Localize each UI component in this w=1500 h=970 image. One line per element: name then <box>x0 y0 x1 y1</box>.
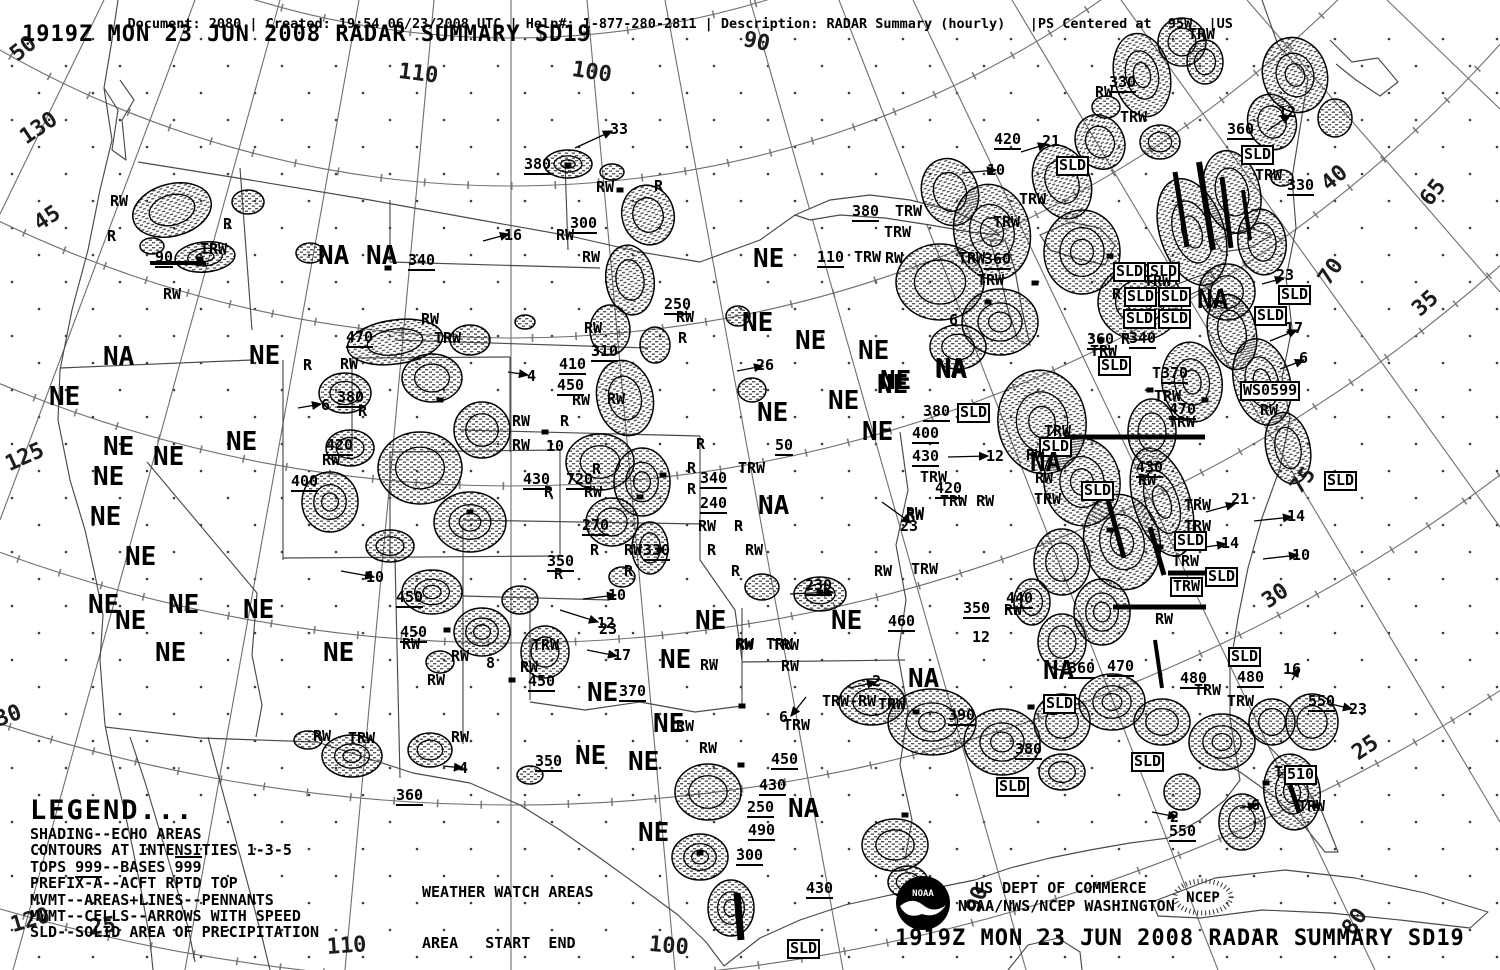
map-label: 450 <box>771 752 798 770</box>
map-label: R <box>678 331 687 347</box>
map-label: 10 <box>1292 548 1310 564</box>
map-label: SLD <box>1043 694 1076 714</box>
map-label: 360 <box>1068 661 1095 679</box>
map-label: SLD <box>1254 306 1287 326</box>
map-label: TRW <box>1194 683 1221 699</box>
map-label: 480 <box>1237 670 1264 688</box>
map-label: 10 <box>608 588 626 604</box>
map-label: TRW <box>958 251 985 267</box>
map-label: SLD <box>1158 309 1191 329</box>
map-label: NE <box>226 429 257 456</box>
grid-label: 130 <box>16 108 62 149</box>
map-label: SLD <box>1124 287 1157 307</box>
map-label: SLD <box>1174 531 1207 551</box>
map-label: 330 <box>1287 178 1314 196</box>
map-label: 340 <box>1129 331 1156 349</box>
map-label: 310 <box>591 344 618 362</box>
map-label: NE <box>858 338 889 365</box>
map-label: 10 <box>987 163 1005 179</box>
legend-line: MVMT--AREAS+LINES--PENNANTS <box>30 892 319 908</box>
grid-label: 25 <box>1348 731 1383 765</box>
radar-title-top: 1919Z MON 23 JUN 2008 RADAR SUMMARY SD19 <box>22 22 592 47</box>
map-label: NE <box>660 647 691 674</box>
map-label: TRW <box>895 204 922 220</box>
map-label: TRW <box>772 638 799 654</box>
map-label: RW <box>313 729 331 745</box>
map-label: 33 <box>610 122 628 138</box>
legend-line: PREFIX-A--ACFT RPTD TOP <box>30 875 319 891</box>
map-label: RW <box>781 659 799 675</box>
map-label: RW <box>607 392 625 408</box>
map-label: 12 <box>1278 105 1296 121</box>
map-label: 380 <box>852 204 879 222</box>
map-label: R <box>696 437 705 453</box>
map-label: 270 <box>582 518 609 536</box>
map-label: RW <box>572 393 590 409</box>
map-label: 50 <box>775 438 793 456</box>
map-label: NE <box>880 368 911 395</box>
map-label: SLD <box>1228 647 1261 667</box>
map-label: 17 <box>613 648 631 664</box>
map-label: 460 <box>888 614 915 632</box>
map-label: NE <box>153 444 184 471</box>
map-label: RW <box>1155 612 1173 628</box>
map-label: SLD <box>996 777 1029 797</box>
map-label: SLD <box>1205 567 1238 587</box>
map-label: NE <box>155 640 186 667</box>
legend-block: LEGEND... SHADING--ECHO AREASCONTOURS AT… <box>30 795 319 941</box>
map-label: 250 <box>747 800 774 818</box>
grid-label: 110 <box>397 60 439 88</box>
map-label: NE <box>115 608 146 635</box>
map-label: NA <box>366 243 397 270</box>
map-label: 300 <box>570 216 597 234</box>
map-label: NE <box>90 504 121 531</box>
map-label: SLD <box>957 403 990 423</box>
map-label: 23 <box>1276 268 1294 284</box>
grid-label: 40 <box>1317 161 1352 196</box>
map-label: SLD <box>1131 752 1164 772</box>
map-label: TRW <box>348 731 375 747</box>
map-label: SLD <box>1123 309 1156 329</box>
map-label: NE <box>742 310 773 337</box>
map-label: NE <box>862 419 893 446</box>
map-label: NE <box>695 608 726 635</box>
map-label: 550 <box>1169 824 1196 842</box>
map-label: TRW <box>1034 492 1061 508</box>
map-label: R <box>687 482 696 498</box>
map-label: 8 <box>486 656 495 672</box>
map-label: NE <box>243 597 274 624</box>
map-label: 4 <box>527 369 536 385</box>
map-label: TRW <box>1168 415 1195 431</box>
legend-line: SHADING--ECHO AREAS <box>30 826 319 842</box>
grid-label: 65 <box>1416 175 1451 210</box>
map-label: RW <box>676 719 694 735</box>
map-label: 350 <box>535 754 562 772</box>
map-label: TRW <box>1184 498 1211 514</box>
map-label: TRW <box>738 461 765 477</box>
map-label: TRW <box>993 215 1020 231</box>
map-label: RW <box>596 180 614 196</box>
map-label: R <box>560 414 569 430</box>
map-label: RW <box>402 637 420 653</box>
map-label: R <box>592 462 601 478</box>
map-label: SLD <box>787 939 820 959</box>
map-label: RW <box>874 564 892 580</box>
map-label: NE <box>323 640 354 667</box>
map-label: 4 <box>459 761 468 777</box>
map-label: NE <box>757 400 788 427</box>
map-label: 12 <box>972 630 990 646</box>
map-label: RW <box>584 485 602 501</box>
map-label: R <box>731 564 740 580</box>
map-label: RW <box>584 321 602 337</box>
map-label: RW <box>512 414 530 430</box>
map-label: 10 <box>546 439 564 455</box>
map-label: 330 <box>643 543 670 561</box>
map-label: 230 <box>805 578 832 596</box>
map-label: R <box>554 567 563 583</box>
map-label: 370 <box>619 684 646 702</box>
map-label: RW <box>451 730 469 746</box>
map-label: R <box>544 485 553 501</box>
map-label: 350 <box>963 601 990 619</box>
map-label: 380 <box>524 157 551 175</box>
map-label: TRW <box>1170 577 1203 597</box>
map-label: RW <box>322 453 340 469</box>
map-label: TRW <box>1255 168 1282 184</box>
map-label: NE <box>587 680 618 707</box>
map-label: 380 <box>923 404 950 422</box>
map-label: TRW <box>783 718 810 734</box>
agency-block: US DEPT OF COMMERCE NOAA/NWS/NCEP WASHIN… <box>880 865 1300 945</box>
map-label: TRW <box>911 562 938 578</box>
map-label: 12 <box>986 449 1004 465</box>
map-label: RW <box>1095 85 1113 101</box>
map-label: T <box>1152 366 1161 382</box>
map-label: 430 <box>912 449 939 467</box>
map-label: 400 <box>912 426 939 444</box>
map-label: RW <box>1260 403 1278 419</box>
map-label: 10 <box>366 570 384 586</box>
map-label: TRW <box>434 331 461 347</box>
map-label: R <box>107 229 116 245</box>
map-label: R <box>707 543 716 559</box>
map-label: RW <box>624 543 642 559</box>
map-label: NE <box>628 749 659 776</box>
map-label: 240 <box>700 496 727 514</box>
legend-line: SLD--SOLID AREA OF PRECIPITATION <box>30 924 319 940</box>
map-label: 26 <box>756 358 774 374</box>
grid-label: 125 <box>2 439 48 476</box>
map-label: NE <box>828 388 859 415</box>
map-label: R <box>358 404 367 420</box>
legend-title: LEGEND... <box>30 795 319 826</box>
map-label: 340 <box>408 253 435 271</box>
map-label: NE <box>795 328 826 355</box>
map-label: 450 <box>396 590 423 608</box>
map-label: R <box>734 519 743 535</box>
map-label: RW <box>582 250 600 266</box>
map-label: TRW <box>1120 110 1147 126</box>
map-label: T <box>1274 765 1283 781</box>
grid-label: 70 <box>1314 254 1348 289</box>
map-label: 380 <box>1015 742 1042 760</box>
map-label: TRW <box>977 273 1004 289</box>
map-label: TRW <box>884 225 911 241</box>
map-label: RW <box>421 312 439 328</box>
map-label: RW <box>451 649 469 665</box>
weather-watch-box: WEATHER WATCH AREAS AREA START END WS059… <box>422 850 594 970</box>
map-label: 360 <box>1227 122 1254 140</box>
map-label: 330 <box>1109 75 1136 93</box>
map-label: NE <box>125 544 156 571</box>
map-label: 400 <box>291 474 318 492</box>
map-label: SLD <box>1056 156 1089 176</box>
map-label: RW <box>512 438 530 454</box>
map-label: RW <box>163 287 181 303</box>
map-label: 6 <box>949 313 958 329</box>
map-label: SLD <box>1278 285 1311 305</box>
legend-line: TOPS 999--BASES 999 <box>30 859 319 875</box>
map-label: 110 <box>817 250 844 268</box>
watch-columns: AREA START END <box>422 935 594 952</box>
map-label: 470 <box>346 330 373 348</box>
map-label: 6 <box>321 398 330 414</box>
agency-org: NOAA/NWS/NCEP WASHINGTON <box>958 897 1175 915</box>
grid-label: 30 <box>1258 579 1293 613</box>
map-label: R <box>687 461 696 477</box>
map-label: 16 <box>504 228 522 244</box>
map-label: RW <box>698 519 716 535</box>
map-label: TRW <box>200 242 227 258</box>
map-label: 490 <box>748 823 775 841</box>
map-label: 470 <box>1107 659 1134 677</box>
map-label: RW <box>676 310 694 326</box>
map-label: SLD <box>1158 287 1191 307</box>
map-label: 360 <box>984 252 1011 270</box>
map-label: RW <box>427 673 445 689</box>
map-label: NA <box>318 243 349 270</box>
map-label: NE <box>168 592 199 619</box>
map-label: 16 <box>1283 662 1301 678</box>
map-label: 6 <box>1251 798 1260 814</box>
map-label: R <box>1112 287 1121 303</box>
radar-summary-page: NOAA NCEP 501304512530120251101009011010… <box>0 0 1500 970</box>
map-label: 300 <box>736 848 763 866</box>
map-label: NE <box>575 743 606 770</box>
map-label: 2 <box>872 674 881 690</box>
grid-label: 30 <box>0 701 25 732</box>
map-label: R <box>223 217 232 233</box>
map-label: RW <box>885 251 903 267</box>
watch-title: WEATHER WATCH AREAS <box>422 884 594 901</box>
map-label: NE <box>103 434 134 461</box>
map-label: TRW <box>878 697 905 713</box>
map-label: 90 <box>155 250 173 268</box>
map-label: SLD <box>1098 356 1131 376</box>
map-label: 430 <box>759 778 786 796</box>
map-label: RW <box>699 741 717 757</box>
map-label: NA <box>935 356 966 383</box>
grid-label: 75 <box>1286 463 1321 498</box>
map-label: 450 <box>528 674 555 692</box>
grid-label: 100 <box>570 58 613 87</box>
map-label: 340 <box>700 471 727 489</box>
map-label: RW <box>1138 473 1156 489</box>
map-label: RW <box>110 194 128 210</box>
map-label: NE <box>249 343 280 370</box>
map-label: TRW <box>1172 554 1199 570</box>
map-label: SLD <box>1241 145 1274 165</box>
map-label: NE <box>831 608 862 635</box>
map-label: NA <box>908 666 939 693</box>
legend-lines: SHADING--ECHO AREASCONTOURS AT INTENSITI… <box>30 826 319 941</box>
grid-label: 35 <box>1408 286 1443 321</box>
map-label: RW <box>700 658 718 674</box>
map-label: 21 <box>1042 134 1060 150</box>
map-label: SLD <box>1113 262 1146 282</box>
map-label: NA <box>103 344 134 371</box>
legend-line: MVMT--CELLS--ARROWS WITH SPEED <box>30 908 319 924</box>
map-label: 14 <box>1287 509 1305 525</box>
map-label: NA <box>758 493 789 520</box>
map-label: 23 <box>599 622 617 638</box>
map-label: 17 <box>1285 321 1303 337</box>
map-label: RW <box>340 357 358 373</box>
map-label: RW <box>1004 603 1022 619</box>
map-label: 14 <box>1221 536 1239 552</box>
map-label: TRW <box>532 638 559 654</box>
map-label: RW <box>906 506 924 522</box>
map-label: 6 <box>1299 351 1308 367</box>
map-label: 370 <box>1161 366 1188 384</box>
grid-label: 100 <box>648 933 690 959</box>
map-label: 360 <box>396 788 423 806</box>
map-label: TRW <box>854 250 881 266</box>
map-label: RW <box>556 228 574 244</box>
map-label: TRW <box>1298 799 1325 815</box>
map-label: 23 <box>1349 702 1367 718</box>
map-label: 390 <box>948 708 975 726</box>
map-label: TRW RW <box>940 494 994 510</box>
map-label: NE <box>93 464 124 491</box>
map-label: WS0599 <box>1240 381 1300 401</box>
map-label: NA <box>1197 287 1228 314</box>
map-label: NA <box>788 796 819 823</box>
map-label: R <box>654 179 663 195</box>
map-label: R <box>303 358 312 374</box>
map-label: 410 <box>559 357 586 375</box>
map-label: TRW <box>1019 192 1046 208</box>
map-label: RW <box>735 638 753 654</box>
agency-dept: US DEPT OF COMMERCE <box>975 879 1147 897</box>
map-label: SLD <box>1324 471 1357 491</box>
map-label: TRW-RW <box>822 694 876 710</box>
map-label: NE <box>753 246 784 273</box>
map-label: RW <box>745 543 763 559</box>
map-label: SLD <box>1081 481 1114 501</box>
map-label: NE <box>638 820 669 847</box>
grid-label: 45 <box>30 202 65 236</box>
map-label: TRW <box>1227 694 1254 710</box>
map-label: R <box>590 543 599 559</box>
map-label: 430 <box>806 881 833 899</box>
map-label: RW <box>1035 471 1053 487</box>
map-label: 510 <box>1284 765 1317 785</box>
map-label: 550 <box>1308 694 1335 712</box>
grid-label: 110 <box>326 933 367 959</box>
map-label: 21 <box>1231 492 1249 508</box>
map-label: 420 <box>994 132 1021 150</box>
map-label: R <box>624 564 633 580</box>
map-label: NE <box>49 384 80 411</box>
